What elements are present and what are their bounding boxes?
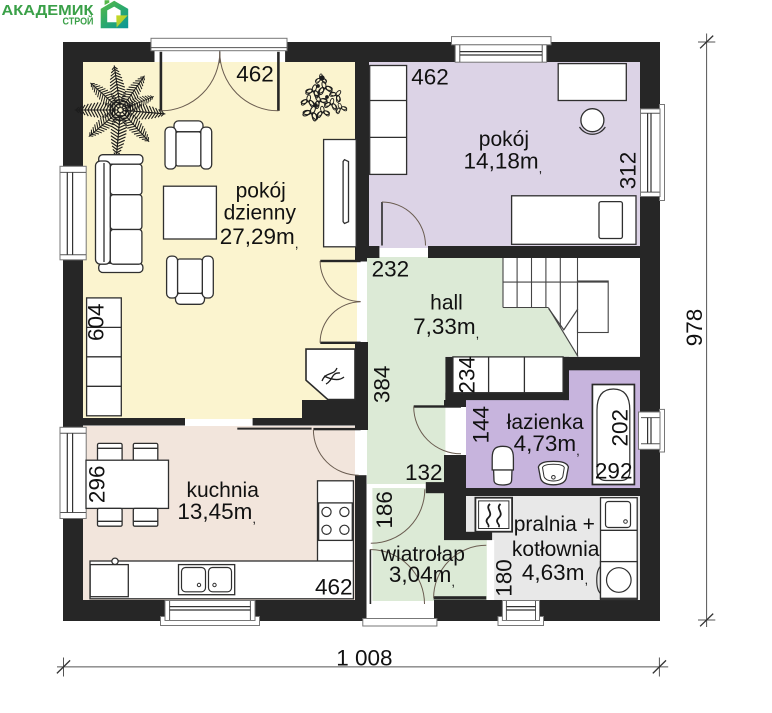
svg-text:pokój: pokój [236, 180, 286, 203]
svg-text:14,18m,: 14,18m, [464, 148, 543, 175]
svg-text:180: 180 [492, 559, 517, 597]
svg-text:4,73m,: 4,73m, [514, 431, 580, 458]
svg-text:978: 978 [682, 309, 707, 347]
svg-text:132: 132 [405, 460, 443, 485]
svg-text:7,33m,: 7,33m, [413, 314, 479, 341]
svg-text:СТРОЙ: СТРОЙ [63, 15, 94, 28]
svg-text:dzienny: dzienny [224, 201, 297, 224]
svg-text:296: 296 [85, 466, 110, 504]
svg-text:232: 232 [372, 257, 410, 282]
svg-text:13,45m,: 13,45m, [177, 499, 256, 526]
svg-text:3,04m,: 3,04m, [389, 562, 455, 589]
svg-text:186: 186 [372, 491, 397, 529]
svg-text:462: 462 [236, 62, 274, 87]
svg-text:27,29m,: 27,29m, [220, 224, 299, 251]
svg-text:1 008: 1 008 [336, 645, 392, 670]
svg-text:pralnia +: pralnia + [514, 513, 595, 536]
svg-text:4,63m,: 4,63m, [522, 560, 588, 587]
svg-text:292: 292 [595, 458, 633, 483]
svg-text:384: 384 [370, 366, 395, 404]
svg-text:hall: hall [430, 291, 463, 314]
svg-text:462: 462 [315, 575, 353, 600]
svg-text:kotłownia: kotłownia [512, 538, 600, 561]
svg-text:202: 202 [608, 409, 633, 447]
svg-text:604: 604 [84, 303, 109, 341]
svg-text:234: 234 [455, 356, 480, 394]
svg-text:312: 312 [616, 152, 641, 190]
svg-text:462: 462 [411, 65, 449, 90]
svg-text:144: 144 [469, 406, 494, 444]
